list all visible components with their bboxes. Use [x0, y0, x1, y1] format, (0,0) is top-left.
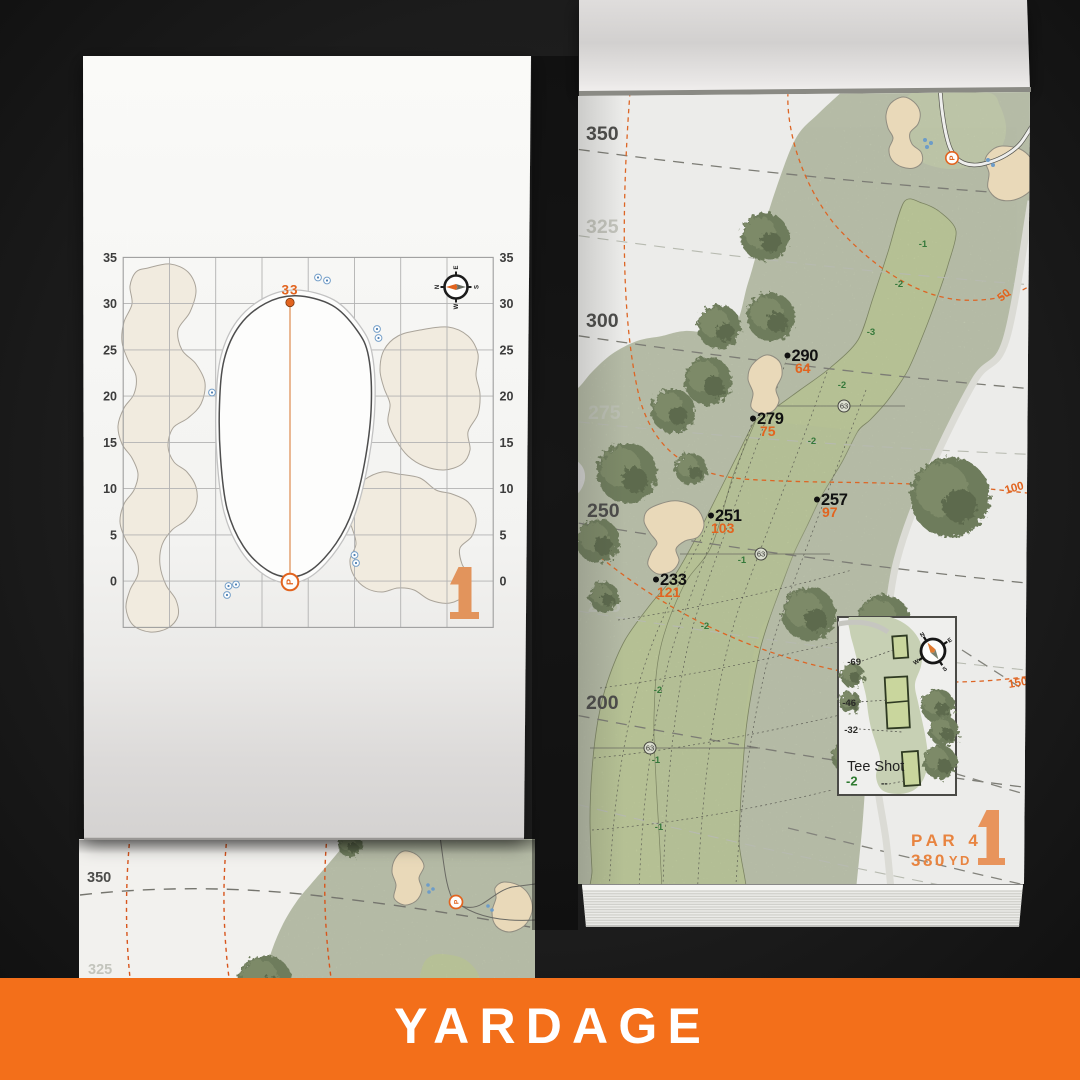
svg-text:350: 350 — [87, 870, 111, 886]
svg-text:20: 20 — [500, 390, 514, 404]
svg-text:25: 25 — [500, 343, 514, 357]
svg-text:-32: -32 — [844, 725, 858, 736]
svg-text:-3: -3 — [867, 327, 875, 338]
svg-text:-1: -1 — [919, 239, 928, 250]
svg-text:--: -- — [881, 779, 888, 790]
svg-text:0: 0 — [500, 575, 507, 589]
svg-text:-1: -1 — [655, 822, 664, 833]
svg-text:-46: -46 — [842, 698, 856, 709]
svg-text:P: P — [453, 899, 460, 904]
svg-text:N: N — [435, 285, 441, 289]
svg-text:380YD: 380YD — [911, 851, 972, 870]
svg-text:63: 63 — [646, 744, 654, 753]
svg-text:97: 97 — [822, 504, 838, 520]
svg-text:15: 15 — [103, 436, 117, 450]
svg-text:-2: -2 — [808, 436, 816, 447]
svg-text:15: 15 — [500, 436, 514, 450]
svg-text:5: 5 — [110, 528, 117, 542]
svg-text:-2: -2 — [654, 685, 662, 696]
svg-text:121: 121 — [657, 584, 681, 600]
svg-text:-1: -1 — [652, 755, 661, 766]
svg-text:20: 20 — [103, 390, 117, 404]
svg-text:30: 30 — [500, 297, 514, 311]
svg-text:10: 10 — [500, 482, 514, 496]
svg-text:35: 35 — [103, 251, 117, 265]
svg-text:30: 30 — [103, 297, 117, 311]
svg-text:35: 35 — [500, 251, 514, 265]
svg-text:E: E — [454, 265, 460, 269]
svg-text:P: P — [948, 155, 957, 160]
svg-text:P: P — [285, 579, 295, 585]
svg-text:103: 103 — [711, 520, 735, 536]
svg-text:63: 63 — [840, 402, 848, 411]
svg-text:-2: -2 — [895, 279, 903, 290]
svg-text:PAR 4: PAR 4 — [911, 831, 982, 850]
svg-text:-2: -2 — [838, 380, 846, 391]
svg-text:75: 75 — [760, 423, 776, 439]
svg-text:5: 5 — [500, 528, 507, 542]
svg-text:-2: -2 — [701, 621, 709, 632]
svg-text:YARDAGE: YARDAGE — [394, 998, 711, 1054]
svg-text:S: S — [475, 285, 481, 289]
svg-text:33: 33 — [281, 283, 298, 298]
svg-text:64: 64 — [795, 360, 811, 376]
svg-text:25: 25 — [103, 343, 117, 357]
svg-text:10: 10 — [103, 482, 117, 496]
svg-text:-1: -1 — [738, 555, 747, 566]
svg-text:63: 63 — [757, 550, 765, 559]
svg-text:325: 325 — [88, 962, 112, 978]
svg-text:0: 0 — [110, 575, 117, 589]
svg-text:-69: -69 — [847, 657, 861, 668]
svg-text:W: W — [454, 303, 460, 309]
svg-text:-2: -2 — [846, 774, 858, 789]
